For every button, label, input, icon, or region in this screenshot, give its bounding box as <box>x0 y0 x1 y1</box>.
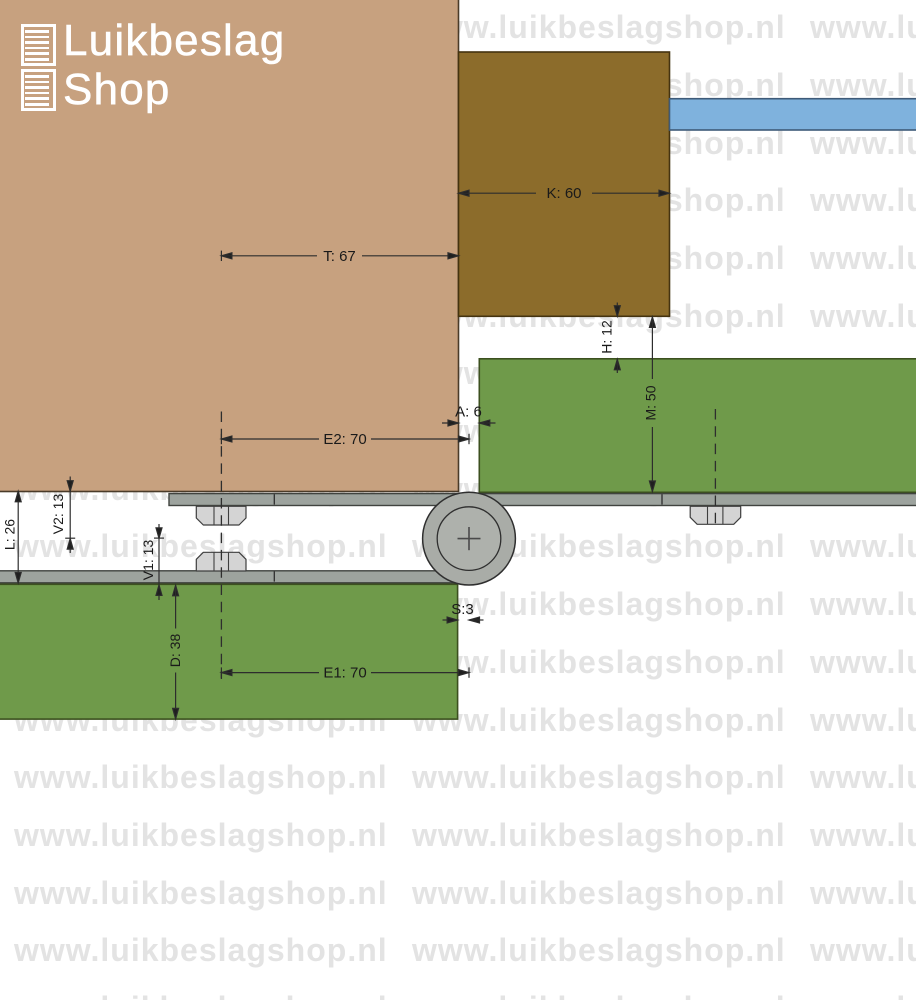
svg-text:T: 67: T: 67 <box>323 248 356 265</box>
svg-text:D: 38: D: 38 <box>167 634 183 668</box>
svg-text:H: 12: H: 12 <box>599 320 615 354</box>
svg-text:V1: 13: V1: 13 <box>140 540 156 581</box>
svg-text:M: 50: M: 50 <box>643 385 659 420</box>
svg-text:E1: 70: E1: 70 <box>323 665 366 682</box>
svg-text:V2: 13: V2: 13 <box>50 494 66 535</box>
svg-text:E2: 70: E2: 70 <box>323 431 366 448</box>
svg-text:K: 60: K: 60 <box>546 185 581 202</box>
svg-text:A: 6: A: 6 <box>455 404 482 421</box>
svg-text:L: 26: L: 26 <box>2 519 18 550</box>
svg-text:S:3: S:3 <box>451 601 474 618</box>
